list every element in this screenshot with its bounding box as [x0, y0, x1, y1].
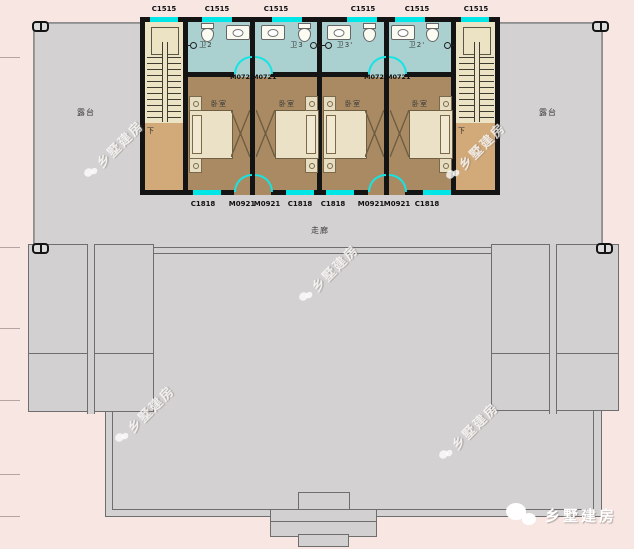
terrace-left-label: 露台	[66, 108, 106, 118]
bath-label-3: 卫3'	[331, 40, 359, 50]
footer-brand-text: 乡墅建房	[545, 505, 617, 526]
floor-plan-canvas: 露台 露台 走廊 下 下	[0, 0, 634, 549]
nightstand	[305, 158, 318, 173]
stair-down-label-left: 下	[147, 126, 154, 136]
wardrobe-cross	[256, 110, 275, 157]
window-bed4	[423, 190, 451, 195]
opening-label: M0921	[382, 200, 412, 209]
window-stair-left	[150, 17, 178, 22]
bedroom-label-3: 卧室	[340, 99, 366, 109]
wardrobe-cross	[365, 110, 384, 157]
window-label: C1515	[348, 5, 378, 14]
bedroom-label-4: 卧室	[407, 99, 433, 109]
roof-beam-left	[87, 244, 95, 414]
opening-label: C1818	[318, 200, 348, 209]
roof-beam-right	[549, 244, 557, 414]
nightstand	[305, 96, 318, 111]
column-pin	[592, 21, 609, 32]
bath-label-1: 卫2	[192, 40, 220, 50]
column-pin	[32, 243, 49, 254]
column-pin	[596, 243, 613, 254]
bed	[275, 110, 319, 159]
toilet-icon	[362, 23, 377, 42]
shower-icon	[310, 42, 317, 49]
window-label: C1515	[149, 5, 179, 14]
shower-icon	[444, 42, 451, 49]
bedroom-label-1: 卧室	[206, 99, 232, 109]
window-stair-right	[461, 17, 489, 22]
sink-icon	[391, 25, 415, 40]
door-label: M0721	[252, 73, 276, 82]
nightstand	[323, 96, 336, 111]
door-label: M0721	[364, 73, 388, 82]
door-label: M0721	[386, 73, 410, 82]
terrace-right	[499, 22, 603, 250]
dimension-tick	[0, 516, 20, 517]
stair-rail-left	[162, 42, 168, 122]
nightstand	[323, 158, 336, 173]
opening-label: M0921	[252, 200, 282, 209]
window-label: C1515	[202, 5, 232, 14]
dimension-tick	[0, 474, 20, 475]
window-bath4	[395, 17, 425, 22]
nightstand	[189, 158, 202, 173]
window-label: C1515	[461, 5, 491, 14]
opening-label: C1818	[285, 200, 315, 209]
footer-brand: 乡墅建房	[506, 502, 617, 529]
bedroom-label-2: 卧室	[274, 99, 300, 109]
nightstand	[189, 96, 202, 111]
dimension-tick	[0, 57, 20, 58]
sink-icon	[327, 25, 351, 40]
window-bed1	[193, 190, 221, 195]
stair-rail-right	[474, 42, 480, 122]
wechat-logo-icon	[506, 502, 539, 529]
sink-icon	[261, 25, 285, 40]
terrace-right-label: 露台	[528, 108, 568, 118]
opening-label: C1818	[412, 200, 442, 209]
door-label: M0721	[230, 73, 254, 82]
entry-step-middle	[270, 509, 377, 537]
window-bed3	[326, 190, 354, 195]
opening-label: C1818	[188, 200, 218, 209]
dimension-tick	[0, 247, 20, 248]
stair-down-label-right: 下	[458, 126, 465, 136]
bath-label-4: 卫2'	[403, 40, 431, 50]
corridor-label: 走廊	[302, 226, 338, 236]
window-bed2	[286, 190, 314, 195]
bath-label-2: 卫3	[283, 40, 311, 50]
window-bath1	[202, 17, 232, 22]
dimension-tick	[0, 400, 20, 401]
column-pin	[32, 21, 49, 32]
dimension-tick	[0, 328, 20, 329]
window-bath2	[272, 17, 302, 22]
bed	[189, 110, 233, 159]
wardrobe-cross	[390, 110, 409, 157]
wardrobe-cross	[231, 110, 250, 157]
entry-step-bottom	[298, 534, 349, 547]
window-label: C1515	[261, 5, 291, 14]
window-label: C1515	[402, 5, 432, 14]
bed	[323, 110, 367, 159]
sink-icon	[226, 25, 250, 40]
bed	[409, 110, 453, 159]
window-bath3	[347, 17, 377, 22]
nightstand	[439, 96, 452, 111]
